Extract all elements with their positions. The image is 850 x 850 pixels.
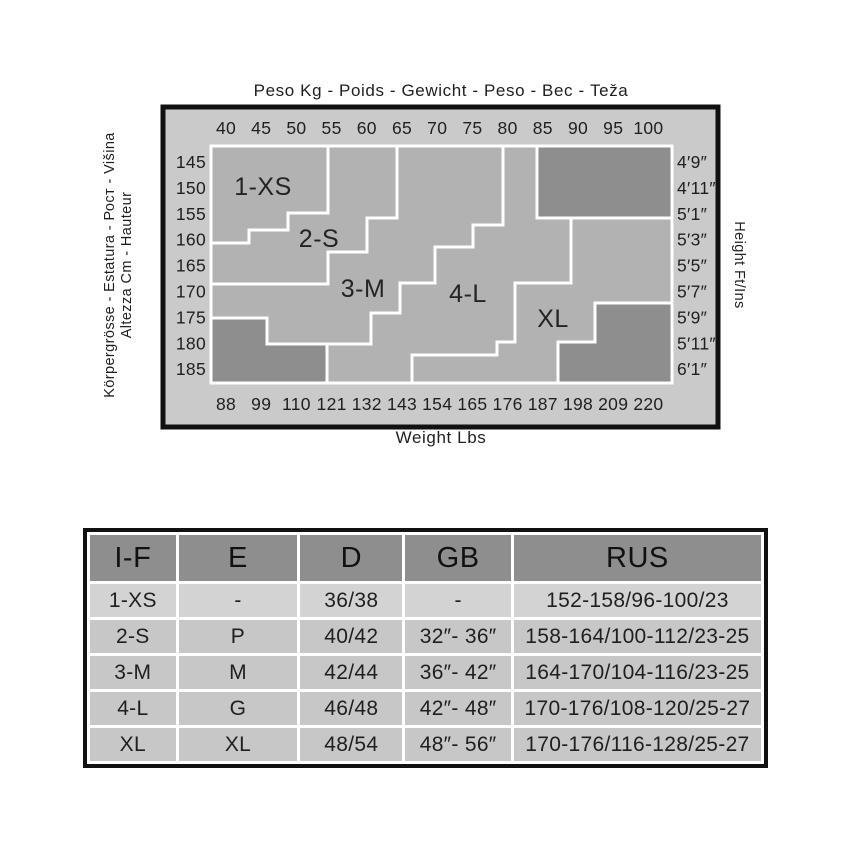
size-chart: 1-XS2-S3-M4-LXL4045505560657075808590951… (0, 0, 850, 485)
zone-label-1-xs: 1-XS (234, 173, 292, 201)
table-row-2-s: 2-SP40/4232″- 36″158-164/100-112/23-25 (90, 620, 761, 653)
ftin-tick: 4′9″ (677, 152, 707, 172)
header-cell-d: D (300, 535, 402, 581)
table-cell: M (179, 656, 298, 689)
lbs-tick: 209 (598, 394, 628, 414)
size-chart-svg: 1-XS2-S3-M4-LXL4045505560657075808590951… (0, 0, 850, 480)
lbs-tick: 110 (282, 394, 311, 414)
kg-tick: 60 (357, 118, 377, 138)
lbs-tick: 198 (563, 394, 593, 414)
table-cell: P (179, 620, 298, 653)
lbs-tick: 132 (352, 394, 382, 414)
kg-tick: 65 (392, 118, 412, 138)
table-cell: 164-170/104-116/23-25 (514, 656, 761, 689)
table-cell: 32″- 36″ (405, 620, 510, 653)
shaded-region-top-right (537, 146, 672, 218)
table-cell: 4-L (90, 692, 176, 725)
kg-tick: 70 (427, 118, 447, 138)
kg-tick: 95 (603, 118, 623, 138)
bottom-axis-title: Weight Lbs (396, 428, 487, 447)
cm-tick: 185 (176, 359, 206, 379)
header-cell-rus: RUS (514, 535, 761, 581)
table-cell: 158-164/100-112/23-25 (514, 620, 761, 653)
table-cell: XL (90, 728, 176, 761)
lbs-tick: 88 (216, 394, 236, 414)
ftin-tick: 5′5″ (677, 256, 707, 276)
cm-tick: 160 (176, 230, 206, 250)
cm-tick: 150 (176, 178, 206, 198)
cm-tick: 165 (176, 256, 206, 276)
zone-label-xl: XL (537, 305, 569, 333)
zone-label-2-s: 2-S (299, 225, 339, 253)
lbs-tick: 99 (251, 394, 271, 414)
header-cell-e: E (179, 535, 298, 581)
table-cell: 46/48 (300, 692, 402, 725)
lbs-tick: 121 (317, 394, 347, 414)
zone-label-4-l: 4-L (449, 280, 487, 308)
table-row-3-m: 3-MM42/4436″- 42″164-170/104-116/23-25 (90, 656, 761, 689)
left-axis-title-inner: Altezza Cm - Hauteur (119, 192, 135, 339)
table-cell: 2-S (90, 620, 176, 653)
kg-tick: 55 (322, 118, 342, 138)
table-cell: G (179, 692, 298, 725)
ftin-tick: 4′11″ (677, 178, 716, 198)
cm-tick: 170 (176, 282, 206, 302)
table-row-xl: XLXL48/5448″- 56″170-176/116-128/25-27 (90, 728, 761, 761)
lbs-tick: 154 (422, 394, 452, 414)
cm-tick: 145 (176, 152, 206, 172)
table-cell: - (405, 584, 510, 617)
size-table: I-FEDGBRUS 1-XS-36/38-152-158/96-100/232… (83, 528, 768, 768)
lbs-tick: 187 (528, 394, 558, 414)
table-cell: 170-176/108-120/25-27 (514, 692, 761, 725)
zone-label-3-m: 3-M (341, 275, 386, 303)
cm-tick: 155 (176, 204, 206, 224)
ftin-tick: 5′11″ (677, 333, 716, 353)
table-cell: 36″- 42″ (405, 656, 510, 689)
kg-tick: 45 (251, 118, 271, 138)
kg-tick: 50 (286, 118, 306, 138)
table-cell: 40/42 (300, 620, 402, 653)
left-axis-title-outer: Körpergrösse - Estatura - Рост - Višina (102, 132, 118, 398)
table-cell: 170-176/116-128/25-27 (514, 728, 761, 761)
table-cell: 42/44 (300, 656, 402, 689)
table-cell: 3-M (90, 656, 176, 689)
kg-tick: 90 (568, 118, 588, 138)
table-cell: 42″- 48″ (405, 692, 510, 725)
table-cell: 152-158/96-100/23 (514, 584, 761, 617)
table-header-row: I-FEDGBRUS (90, 535, 761, 581)
ftin-tick: 5′3″ (677, 230, 707, 250)
ftin-tick: 5′7″ (677, 282, 707, 302)
kg-tick: 100 (633, 118, 663, 138)
table-cell: 48″- 56″ (405, 728, 510, 761)
table-cell: XL (179, 728, 298, 761)
cm-tick: 175 (176, 307, 206, 327)
table-cell: 1-XS (90, 584, 176, 617)
kg-tick: 75 (462, 118, 482, 138)
right-axis-title: Height Ft/Ins (731, 221, 747, 308)
header-cell-gb: GB (405, 535, 510, 581)
cm-tick: 180 (176, 333, 206, 353)
kg-tick: 85 (533, 118, 553, 138)
lbs-tick: 165 (457, 394, 487, 414)
ftin-tick: 5′9″ (677, 307, 707, 327)
table-row-1-xs: 1-XS-36/38-152-158/96-100/23 (90, 584, 761, 617)
table-row-4-l: 4-LG46/4842″- 48″170-176/108-120/25-27 (90, 692, 761, 725)
top-axis-title: Peso Kg - Poids - Gewicht - Peso - Вес -… (254, 81, 629, 100)
lbs-tick: 176 (493, 394, 523, 414)
size-conversion-table: I-FEDGBRUS 1-XS-36/38-152-158/96-100/232… (83, 528, 768, 758)
table-cell: 36/38 (300, 584, 402, 617)
kg-tick: 80 (498, 118, 518, 138)
table-cell: 48/54 (300, 728, 402, 761)
lbs-tick: 143 (387, 394, 417, 414)
ftin-tick: 5′1″ (677, 204, 707, 224)
ftin-tick: 6′1″ (677, 359, 707, 379)
kg-tick: 40 (216, 118, 236, 138)
table-cell: - (179, 584, 298, 617)
header-cell-i-f: I-F (90, 535, 176, 581)
lbs-tick: 220 (633, 394, 663, 414)
